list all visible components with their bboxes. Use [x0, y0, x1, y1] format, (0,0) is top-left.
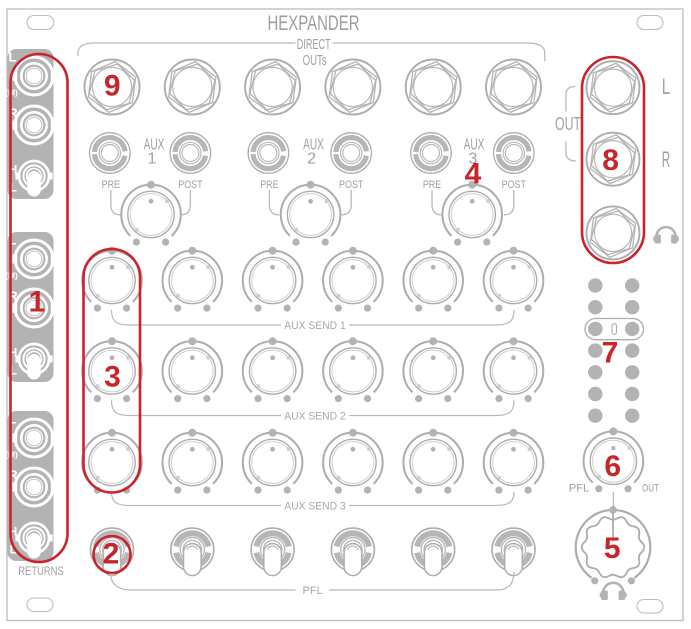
svg-text:8: 8 [602, 144, 619, 177]
svg-text:L: L [9, 50, 17, 65]
svg-text:HEXPANDER: HEXPANDER [268, 12, 360, 35]
svg-text:6: 6 [604, 450, 621, 483]
svg-text:5: 5 [604, 532, 621, 565]
svg-text:DIRECT: DIRECT [297, 36, 331, 53]
svg-text:OUT: OUT [555, 113, 581, 134]
svg-text:OUT: OUT [642, 483, 659, 495]
svg-text:2: 2 [307, 151, 316, 168]
svg-text:1: 1 [29, 285, 46, 318]
svg-text:1: 1 [148, 151, 157, 168]
svg-text:AUX SEND 1: AUX SEND 1 [284, 320, 346, 332]
svg-text:4: 4 [465, 157, 482, 190]
svg-text:L: L [662, 74, 671, 99]
svg-text:PRE: PRE [423, 179, 441, 191]
svg-text:POST: POST [178, 179, 203, 191]
svg-text:2: 2 [103, 537, 120, 570]
svg-text:POST: POST [339, 179, 364, 191]
svg-text:AUX SEND 2: AUX SEND 2 [284, 410, 346, 422]
svg-text:9: 9 [104, 69, 121, 102]
svg-text:PFL: PFL [302, 585, 322, 597]
svg-text:AUX SEND 3: AUX SEND 3 [284, 500, 346, 512]
svg-text:PFL: PFL [569, 483, 590, 495]
svg-text:RETURNS: RETURNS [18, 564, 64, 578]
svg-text:7: 7 [602, 336, 619, 369]
svg-text:PRE: PRE [102, 179, 120, 191]
svg-text:OUTs: OUTs [303, 52, 327, 69]
svg-text:PRE: PRE [260, 179, 278, 191]
svg-text:R: R [662, 147, 671, 172]
svg-text:3: 3 [104, 360, 121, 393]
svg-text:POST: POST [502, 179, 527, 191]
